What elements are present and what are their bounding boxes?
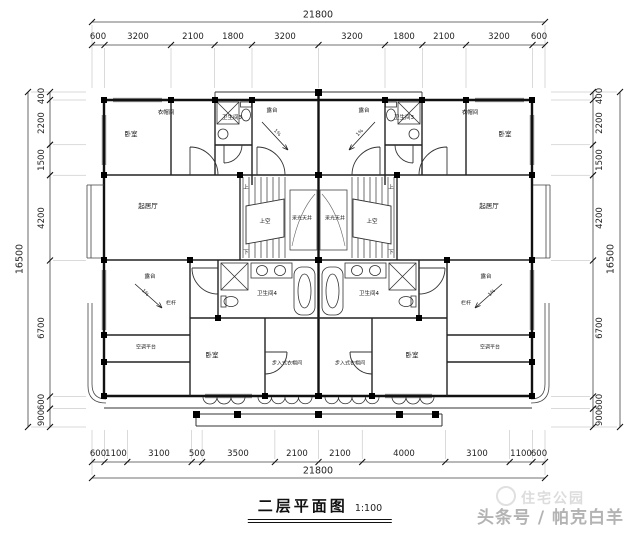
dim-right-3: 4200 (595, 207, 605, 229)
railing-label-left: 栏杆 (166, 300, 176, 307)
stair-up-right: 上 (388, 183, 394, 191)
room-label-terrace-top-right: 露台 (358, 106, 369, 114)
exterior-walls (104, 92, 532, 396)
room-label-closet-tr: 衣帽间 (462, 108, 479, 116)
room-label-terrace-bl: 露台 (144, 272, 155, 280)
lightwell-label-right: 采光天井 (325, 215, 345, 222)
dim-right-1: 2200 (595, 112, 605, 134)
dim-left-6: 900 (37, 410, 47, 426)
dim-top-8: 3200 (488, 32, 510, 42)
room-label-closet-tl: 衣帽间 (158, 108, 175, 116)
dim-bottom-8: 3100 (466, 449, 488, 459)
dim-top-2: 2100 (182, 32, 204, 42)
dim-left-2: 1500 (37, 149, 47, 171)
dim-top-5: 3200 (341, 32, 363, 42)
dim-right-5: 600 (595, 394, 605, 410)
room-label-wic-left: 步入式衣帽间 (272, 360, 302, 367)
watermark-credit: 头条号 / 帕克白羊 (477, 503, 624, 528)
dim-bottom-7: 4000 (393, 449, 415, 459)
void-label-left: 上空 (259, 217, 270, 225)
room-label-bath4-left: 卫生间4 (257, 289, 277, 297)
dim-left-total: 16500 (15, 244, 26, 274)
dim-top-total: 21800 (303, 10, 333, 21)
dim-bottom-9: 1100 (510, 449, 532, 459)
void-label-right: 上空 (366, 217, 377, 225)
room-label-bath4-right: 卫生间4 (359, 289, 379, 297)
dim-bottom-0: 600 (90, 449, 106, 459)
dim-left-3: 4200 (37, 207, 47, 229)
stair-down-right: 下 (388, 248, 394, 256)
dim-top-3: 1800 (222, 32, 244, 42)
dim-right-6: 900 (595, 410, 605, 426)
ac-platform-label-left: 空调平台 (136, 344, 156, 351)
dim-left-1: 2200 (37, 112, 47, 134)
dim-bottom-6: 2100 (329, 449, 351, 459)
lightwell-label-left: 采光天井 (292, 215, 312, 222)
room-label-bedroom-tr: 卧室 (499, 128, 512, 138)
room-label-bedroom-tl: 卧室 (125, 128, 138, 138)
dim-bottom-3: 500 (189, 449, 205, 459)
dim-left-0: 400 (37, 88, 47, 104)
drawing-title: 二层平面图 (258, 495, 348, 516)
dim-bottom-4: 3500 (227, 449, 249, 459)
room-label-living-right: 起居厅 (479, 200, 499, 210)
dim-bottom-2: 3100 (148, 449, 170, 459)
dim-right-2: 1500 (595, 149, 605, 171)
stair-down-left: 下 (243, 248, 249, 256)
room-label-terrace-top-left: 露台 (266, 106, 277, 114)
dim-top-0: 600 (90, 32, 106, 42)
room-label-bedroom-br: 卧室 (406, 349, 419, 359)
dim-right-total: 16500 (606, 244, 617, 274)
dim-bottom-10: 600 (531, 449, 547, 459)
dim-top-1: 3200 (127, 32, 149, 42)
drawing-scale: 1:100 (355, 503, 382, 514)
dim-bottom-total: 21800 (303, 466, 333, 477)
dim-bottom-5: 2100 (286, 449, 308, 459)
dim-bottom-1: 1100 (105, 449, 127, 459)
dim-left-4: 6700 (37, 317, 47, 339)
dim-right-0: 400 (595, 88, 605, 104)
room-label-bedroom-bl: 卧室 (206, 349, 219, 359)
dim-left-5: 600 (37, 394, 47, 410)
railing-label-right: 栏杆 (461, 300, 471, 307)
room-label-terrace-br: 露台 (480, 272, 491, 280)
floor-plan-sheet: 21800 600 3200 2100 1800 3200 3200 1800 … (0, 0, 640, 535)
ac-platform-label-right: 空调平台 (480, 344, 500, 351)
stair-up-left: 上 (243, 183, 249, 191)
dim-top-4: 3200 (274, 32, 296, 42)
room-label-bath3-left: 卫生间3 (222, 113, 242, 121)
room-label-wic-right: 步入式衣帽间 (335, 360, 365, 367)
room-label-bath3-right: 卫生间3 (394, 113, 414, 121)
drawing-title-block: 二层平面图 1:100 (248, 495, 392, 523)
dim-top-9: 600 (531, 32, 547, 42)
dim-top-7: 2100 (433, 32, 455, 42)
room-label-living-left: 起居厅 (138, 200, 158, 210)
dim-right-4: 6700 (595, 317, 605, 339)
dim-top-6: 1800 (393, 32, 415, 42)
